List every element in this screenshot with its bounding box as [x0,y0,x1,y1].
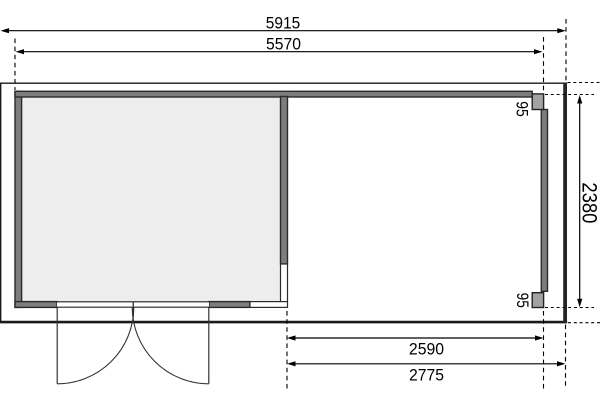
svg-text:95: 95 [513,101,532,117]
svg-text:2775: 2775 [409,367,444,385]
svg-text:5570: 5570 [266,36,301,54]
svg-text:2590: 2590 [409,341,444,359]
svg-text:95: 95 [513,293,532,308]
svg-text:2380: 2380 [577,182,600,223]
svg-text:5915: 5915 [266,15,301,33]
